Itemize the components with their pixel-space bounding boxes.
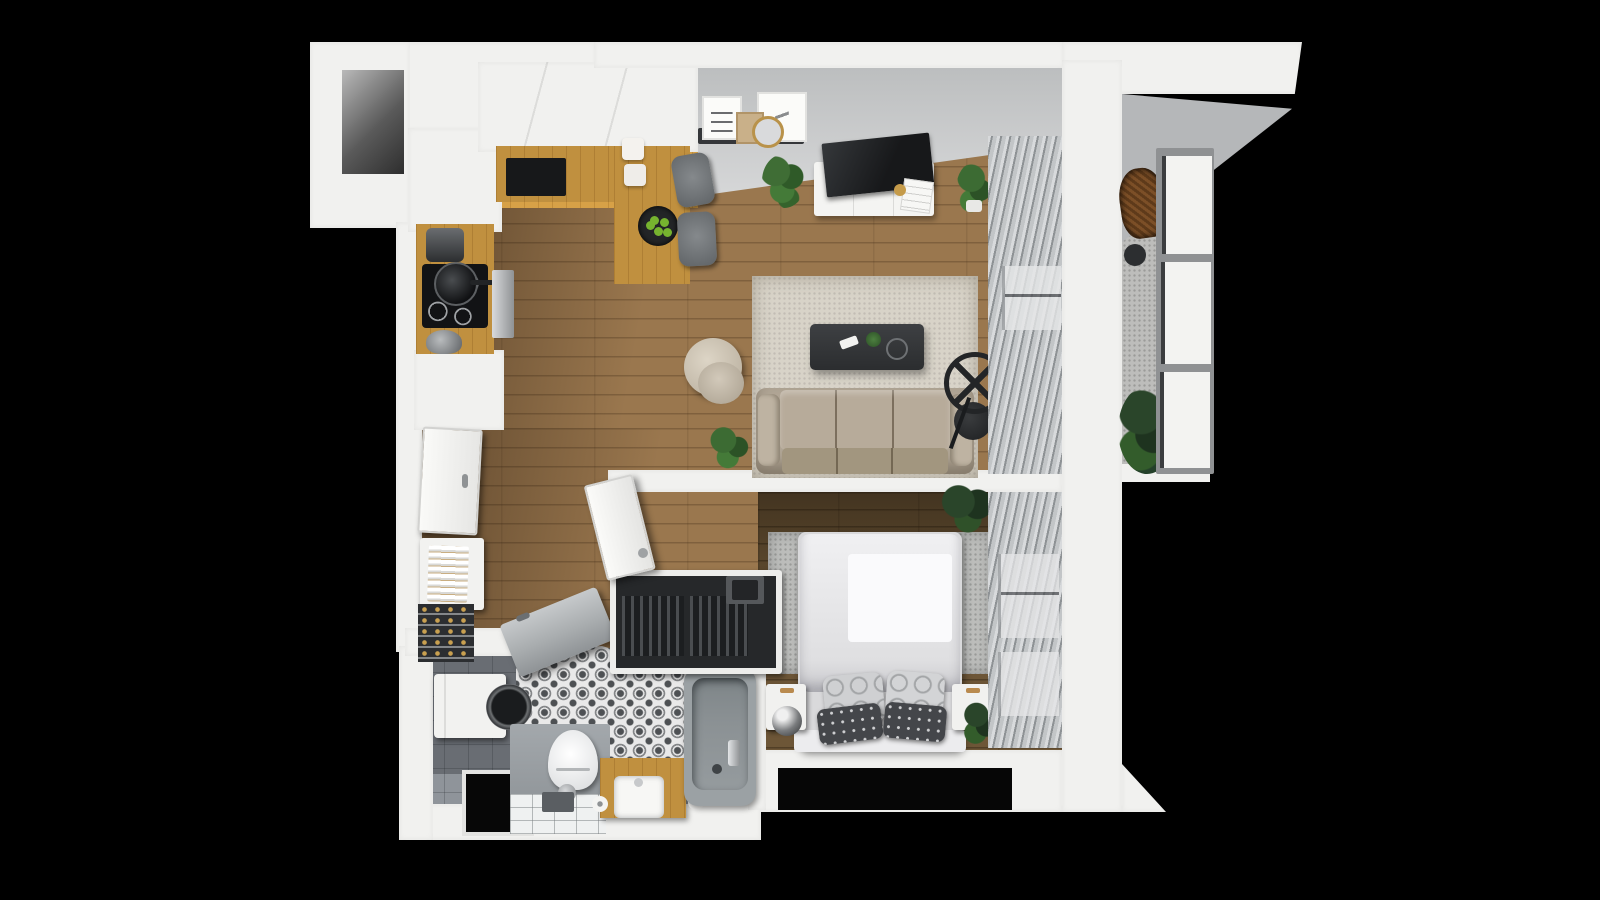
bed-sheet-fold [848,554,952,642]
bathtub-inner [692,678,748,790]
coffee-maker [426,228,464,262]
wall-top-mid-band [594,42,1064,68]
toilet [548,730,598,790]
balcony-stool [1124,244,1146,266]
wardrobe-door-handle [638,548,648,558]
sofa-backrest [782,448,948,474]
tub-drain [712,764,722,774]
table-plant [866,332,881,347]
sideboard-books [427,545,469,602]
tub-faucet [728,740,740,766]
plant-pot-white [966,200,982,212]
window-pane-2 [1161,262,1211,364]
table-tray [886,338,908,360]
bedroom-south-window-slit [778,768,1012,810]
hanging-clothes-left [622,596,684,656]
nightstand-right-handle [966,688,980,693]
round-mirror [752,116,784,148]
plant-by-tv [762,154,806,208]
fruit-bowl [638,206,678,246]
toilet-paper-roll [592,796,608,812]
plant-by-sofa [708,424,752,470]
living-window [1002,266,1061,330]
tv-stand-books [900,178,934,214]
wall-right-foot [1122,764,1166,812]
sofa-seat-cushions [780,390,950,450]
hanging-clothes-right [690,596,748,656]
bedroom-window-2 [998,652,1059,716]
kitchen-upper-cabinets [478,62,698,152]
armchair-seat [698,362,744,404]
oven-front [492,270,514,338]
mug [622,138,644,160]
kettle [426,330,462,354]
wall-right-column [1062,60,1122,812]
wardrobe-tray-inner [732,580,758,600]
bedroom-window-1 [998,554,1059,638]
window-pane-1 [1162,156,1212,254]
mug-2 [624,164,646,186]
sofa-arm-left [758,394,780,466]
window-pane-3 [1160,372,1210,468]
entry-door-handle [462,474,468,488]
dining-chair-2 [677,211,718,267]
wall-bathroom-left [399,646,433,840]
floor-drain [542,792,574,812]
floor-plan-render [0,0,1600,900]
wine-rack [418,604,474,662]
wall-niche [342,70,404,174]
pot-handle [470,280,494,285]
toilet-seam [556,768,590,771]
sink-faucet [634,778,643,787]
nightstand-left-handle [780,688,794,693]
table-dark-inset [506,158,566,196]
sphere-lamp [772,706,802,736]
green-apples [650,216,659,225]
kitchen-lower-cabinet [414,350,504,430]
pillow-dots-right [883,701,948,742]
gold-coaster [894,184,906,196]
entry-door [417,427,482,536]
